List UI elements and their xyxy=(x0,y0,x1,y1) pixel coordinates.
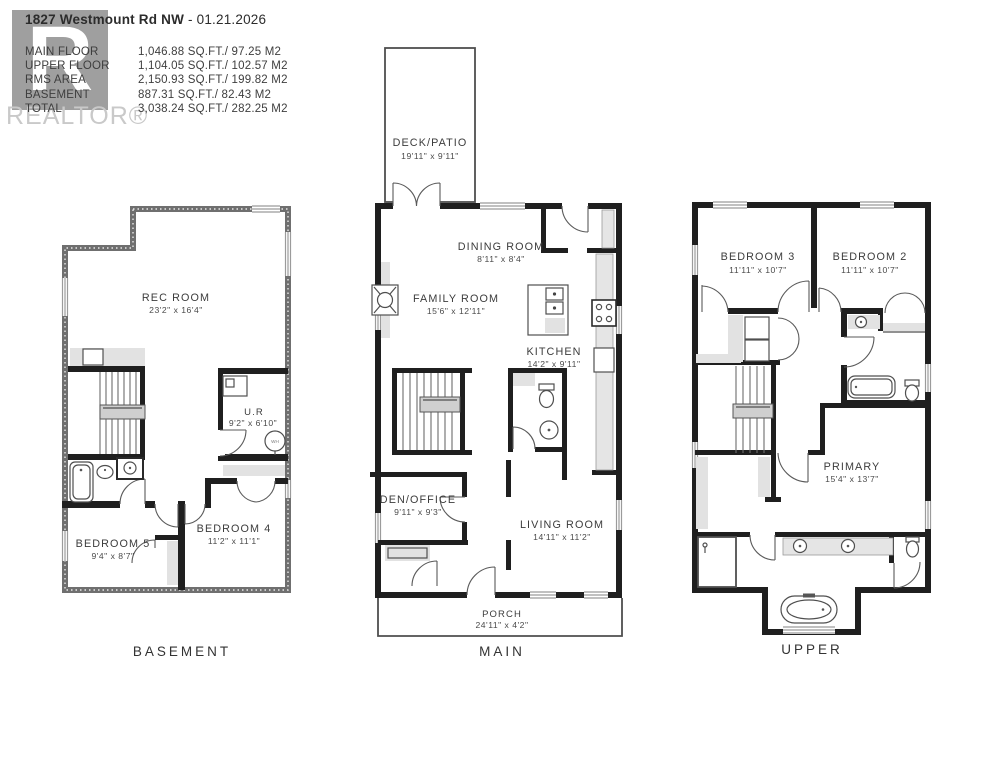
room-dims: 19'11" x 9'11" xyxy=(401,151,459,161)
deck-outline xyxy=(385,48,475,202)
basement-floorplan: WH REC ROOM 23'2" x 16'4" U.R 9'2" x 6'1… xyxy=(50,196,300,666)
svg-text:WH: WH xyxy=(271,439,279,444)
sink-icon xyxy=(97,466,113,479)
room-dims: 11'11" x 10'7" xyxy=(841,265,899,275)
area-label: BASEMENT xyxy=(25,88,138,102)
room-dims: 23'2" x 16'4" xyxy=(149,305,203,315)
room-label: BEDROOM 5 xyxy=(76,538,151,550)
room-label: DINING ROOM xyxy=(458,241,544,253)
basement-furnace-area xyxy=(70,348,145,366)
area-label: MAIN FLOOR xyxy=(25,45,138,59)
room-dims: 9'4" x 8'7" xyxy=(91,551,134,561)
room-label: PORCH xyxy=(482,609,522,620)
header: 1827 Westmount Rd NW - 01.21.2026 MAIN F… xyxy=(25,12,288,116)
floor-label-main: MAIN xyxy=(479,644,525,659)
washer-icon xyxy=(117,458,143,479)
room-dims: 15'4" x 13'7" xyxy=(825,474,879,484)
main-stairs xyxy=(403,373,460,450)
water-heater-icon: WH xyxy=(265,431,285,455)
area-row: UPPER FLOOR 1,104.05 SQ.FT./ 102.57 M2 xyxy=(25,59,288,73)
walkin-closet xyxy=(696,457,770,529)
ensuite-toilet-icon xyxy=(906,537,919,557)
utility-appliance-icon xyxy=(223,376,247,396)
area-row: TOTAL 3,038.24 SQ.FT./ 282.25 M2 xyxy=(25,102,288,116)
address: 1827 Westmount Rd NW xyxy=(25,12,184,27)
room-dims: 14'11" x 11'2" xyxy=(533,532,591,542)
room-dims: 8'11" x 8'4" xyxy=(477,254,525,264)
area-label: UPPER FLOOR xyxy=(25,59,138,73)
kitchen-island xyxy=(528,285,568,335)
basement-stairs xyxy=(100,372,145,454)
area-label: TOTAL xyxy=(25,102,138,116)
floor-label-basement: BASEMENT xyxy=(133,644,231,659)
room-dims: 15'6" x 12'11" xyxy=(427,306,485,316)
room-dims: 14'2" x 9'11" xyxy=(528,359,581,369)
room-label: REC ROOM xyxy=(142,292,210,304)
room-dims: 24'11" x 4'2" xyxy=(476,620,529,630)
room-label: FAMILY ROOM xyxy=(413,293,499,305)
toilet-icon xyxy=(905,380,919,401)
stove-icon xyxy=(592,300,616,326)
freestanding-tub-icon xyxy=(781,594,837,624)
room-label: KITCHEN xyxy=(526,346,581,358)
room-dims: 9'11" x 9'3" xyxy=(394,507,442,517)
bathtub-icon xyxy=(848,376,895,398)
upper-stairs xyxy=(733,366,773,453)
area-row: MAIN FLOOR 1,046.88 SQ.FT./ 97.25 M2 xyxy=(25,45,288,59)
bedroom2-closet xyxy=(883,323,925,332)
room-label: U.R xyxy=(244,407,264,418)
room-label: BEDROOM 3 xyxy=(721,251,796,263)
upper-floorplan: BEDROOM 3 11'11" x 10'7" BEDROOM 2 11'11… xyxy=(688,196,938,666)
room-dims: 11'2" x 11'1" xyxy=(208,536,260,546)
area-row: RMS AREA 2,150.93 SQ.FT./ 199.82 M2 xyxy=(25,73,288,87)
ensuite-vanity-icon xyxy=(783,538,893,555)
floorplan-sheet: R REALTOR® 1827 Westmount Rd NW - 01.21.… xyxy=(0,0,993,768)
area-value: 1,046.88 SQ.FT./ 97.25 M2 xyxy=(138,45,281,59)
room-label: LIVING ROOM xyxy=(520,519,604,531)
shower-icon xyxy=(698,537,736,587)
area-value: 887.31 SQ.FT./ 82.43 M2 xyxy=(138,88,271,102)
room-label: DECK/PATIO xyxy=(393,137,468,149)
entry-closet xyxy=(385,545,430,561)
area-table: MAIN FLOOR 1,046.88 SQ.FT./ 97.25 M2 UPP… xyxy=(25,45,288,116)
date: - 01.21.2026 xyxy=(188,12,266,27)
area-value: 3,038.24 SQ.FT./ 282.25 M2 xyxy=(138,102,288,116)
room-dims: 11'11" x 10'7" xyxy=(729,265,787,275)
powder-door-gap xyxy=(513,445,535,454)
room-label: DEN/OFFICE xyxy=(380,494,456,506)
main-floorplan: DECK/PATIO 19'11" x 9'11" DINING ROOM 8'… xyxy=(363,40,628,665)
floor-label-upper: UPPER xyxy=(781,642,843,657)
room-label: BEDROOM 2 xyxy=(833,251,908,263)
address-line: 1827 Westmount Rd NW - 01.21.2026 xyxy=(25,12,288,27)
linen-closet xyxy=(696,354,741,363)
area-row: BASEMENT 887.31 SQ.FT./ 82.43 M2 xyxy=(25,88,288,102)
room-label: BEDROOM 4 xyxy=(197,523,272,535)
room-label: PRIMARY xyxy=(824,461,881,473)
bath-vanity-icon xyxy=(848,315,880,329)
area-value: 2,150.93 SQ.FT./ 199.82 M2 xyxy=(138,73,288,87)
area-label: RMS AREA xyxy=(25,73,138,87)
bathtub-icon xyxy=(70,462,93,502)
fridge-icon xyxy=(594,348,614,372)
powder-room-fixtures xyxy=(513,373,558,439)
area-value: 1,104.05 SQ.FT./ 102.57 M2 xyxy=(138,59,288,73)
room-dims: 9'2" x 6'10" xyxy=(229,418,277,428)
